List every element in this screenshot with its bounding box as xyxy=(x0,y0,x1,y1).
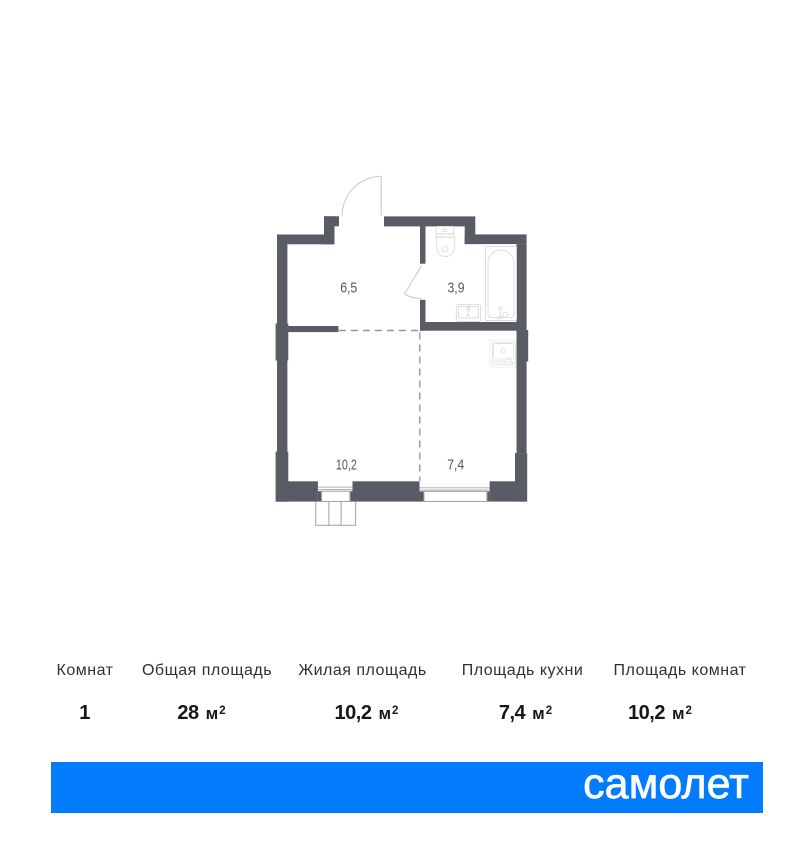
svg-text:7,4: 7,4 xyxy=(447,456,464,473)
svg-text:3,9: 3,9 xyxy=(448,280,465,297)
svg-text:6,5: 6,5 xyxy=(340,280,357,297)
svg-text:10,2: 10,2 xyxy=(336,456,357,473)
